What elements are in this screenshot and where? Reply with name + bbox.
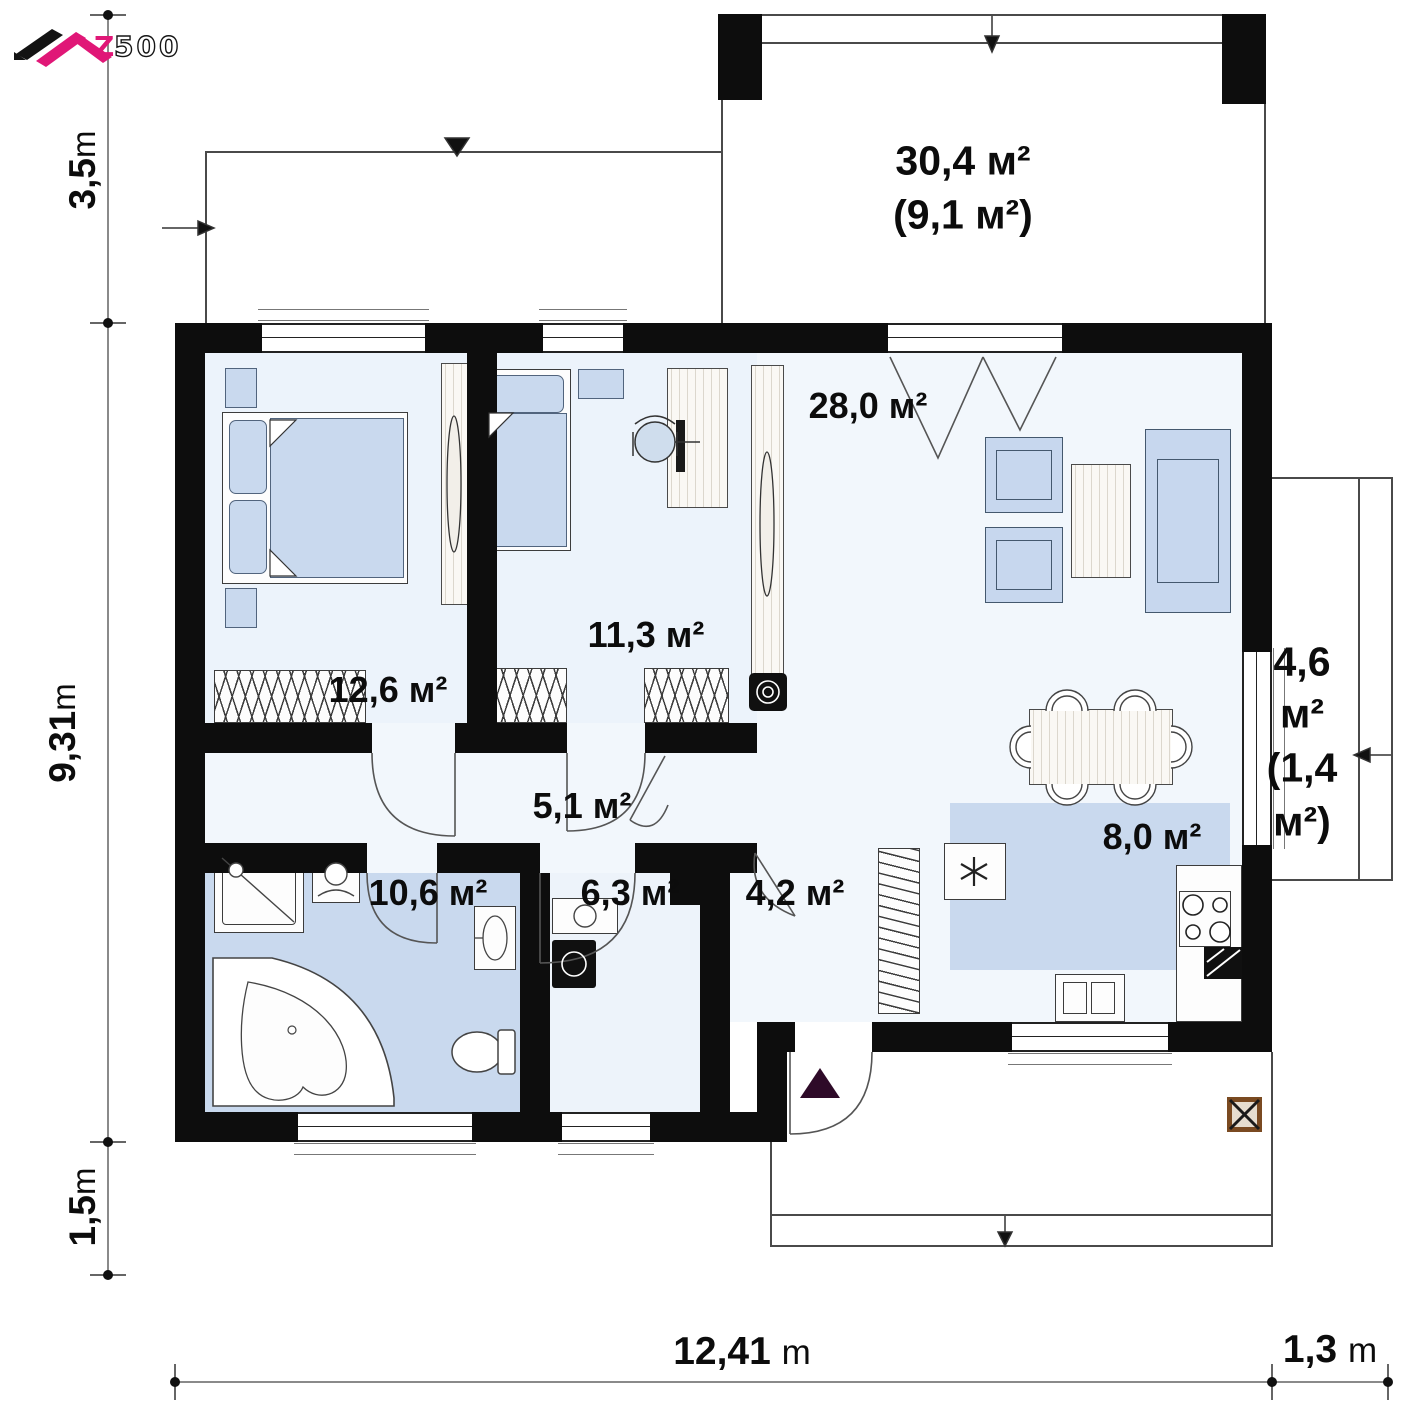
bedroom2-area-label: 11,3 м² — [588, 614, 705, 656]
boiler-icon — [562, 952, 586, 976]
logo-500: 500 — [114, 30, 181, 63]
dimension-dot — [1383, 1377, 1393, 1387]
living-area-label: 28,0 м² — [809, 385, 928, 427]
dimension-label-3-5: 3,5m — [62, 110, 102, 230]
dim-value: 1,3 — [1283, 1328, 1337, 1371]
washbasin-icon — [474, 916, 507, 960]
dimension-label-1-5: 1,5m — [62, 1147, 102, 1267]
vestibule-area-label: 4,2 м² — [746, 872, 845, 914]
kitchen-area-label: 8,0 м² — [1103, 816, 1202, 858]
bathtub-icon — [213, 958, 394, 1106]
dim-value: 9,31 — [42, 711, 83, 783]
dimension-label-1-3: 1,3 m — [1230, 1328, 1403, 1372]
dim-value: 3,5 — [62, 158, 103, 209]
dim-unit: m — [45, 683, 82, 711]
plan-overlay-graphics — [0, 0, 1403, 1423]
dining-chairs — [1010, 690, 1192, 805]
hall-living-door — [630, 756, 668, 826]
terrace-right-label-line4: м²) — [1273, 799, 1331, 846]
shower-icon — [222, 858, 294, 922]
hall-area-label: 5,1 м² — [533, 785, 632, 827]
terrace-top-secondary-label: (9,1 м²) — [893, 192, 1033, 239]
office-chair — [633, 416, 700, 462]
dimension-dot — [103, 1270, 113, 1280]
z500-logo: Z 500 — [6, 8, 196, 78]
dim-unit: m — [782, 1333, 811, 1372]
utility-area-label: 6,3 м² — [581, 872, 680, 914]
dim-unit: m — [65, 131, 102, 159]
terrace-right-label-line1: 4,6 — [1274, 639, 1331, 686]
dimension-dot — [170, 1377, 180, 1387]
oven-stripes-icon — [1207, 949, 1240, 976]
terrace-right-label-line2: м² — [1280, 691, 1324, 738]
dimension-dot — [103, 1137, 113, 1147]
dim-value: 1,5 — [62, 1195, 103, 1246]
bedroom1-area-label: 12,6 м² — [329, 669, 448, 711]
terrace-right-label-line3: (1,4 — [1267, 745, 1338, 792]
floor-plan-canvas: 3,5m 9,31m 1,5m 12,41 m 1,3 m 30,4 м² (9… — [0, 0, 1403, 1423]
entrance-marker-icon — [800, 1068, 840, 1098]
dimension-label-12-41: 12,41 m — [592, 1330, 892, 1374]
cabinet-door-icon — [447, 416, 774, 596]
terrace-top-area-label: 30,4 м² — [895, 138, 1030, 185]
dim-unit: m — [1348, 1331, 1377, 1370]
dimension-dot — [1267, 1377, 1277, 1387]
post-cross-icon — [1230, 1100, 1259, 1129]
toilet-icon — [452, 1030, 515, 1074]
dim-value: 12,41 — [673, 1330, 771, 1373]
logo-z: Z — [94, 30, 114, 63]
corner-washbasin-icon — [318, 863, 354, 896]
dimension-dot — [103, 318, 113, 328]
dimension-label-9-31: 9,31m — [42, 663, 82, 803]
sink-drain-icon — [961, 857, 987, 886]
bedroom1-door — [372, 753, 455, 836]
stove-burners-icon — [1183, 895, 1230, 942]
dim-unit: m — [65, 1168, 102, 1196]
bathroom-area-label: 10,6 м² — [369, 872, 488, 914]
bed-fold-icon — [270, 413, 513, 576]
washing-machine-icon — [757, 681, 779, 703]
